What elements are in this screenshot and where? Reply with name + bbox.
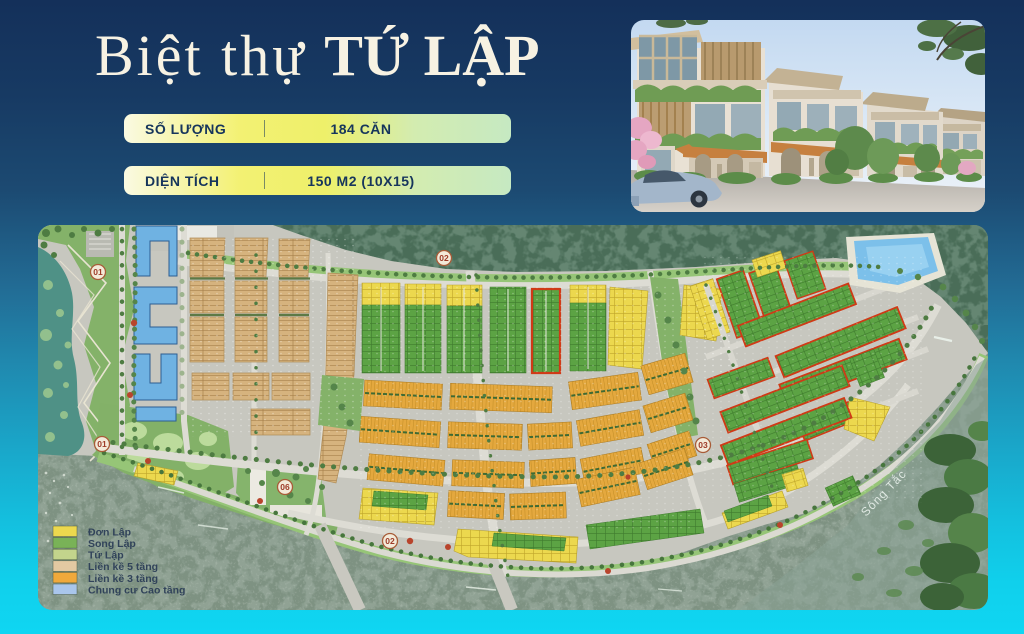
svg-text:01: 01 <box>93 267 103 277</box>
svg-text:06: 06 <box>280 482 290 492</box>
svg-text:02: 02 <box>439 253 449 263</box>
svg-text:03: 03 <box>698 440 708 450</box>
svg-text:02: 02 <box>385 536 395 546</box>
svg-text:Tứ Lập: Tứ Lập <box>88 550 124 562</box>
svg-text:Song Lập: Song Lập <box>88 538 136 550</box>
svg-text:Đơn Lập: Đơn Lập <box>88 527 131 539</box>
svg-text:Chung cư Cao tầng: Chung cư Cao tầng <box>88 584 185 596</box>
svg-text:01: 01 <box>97 439 107 449</box>
svg-text:Liền kề 5 tầng: Liền kề 5 tầng <box>88 561 158 573</box>
svg-text:Liền kề 3 tầng: Liền kề 3 tầng <box>88 573 158 585</box>
